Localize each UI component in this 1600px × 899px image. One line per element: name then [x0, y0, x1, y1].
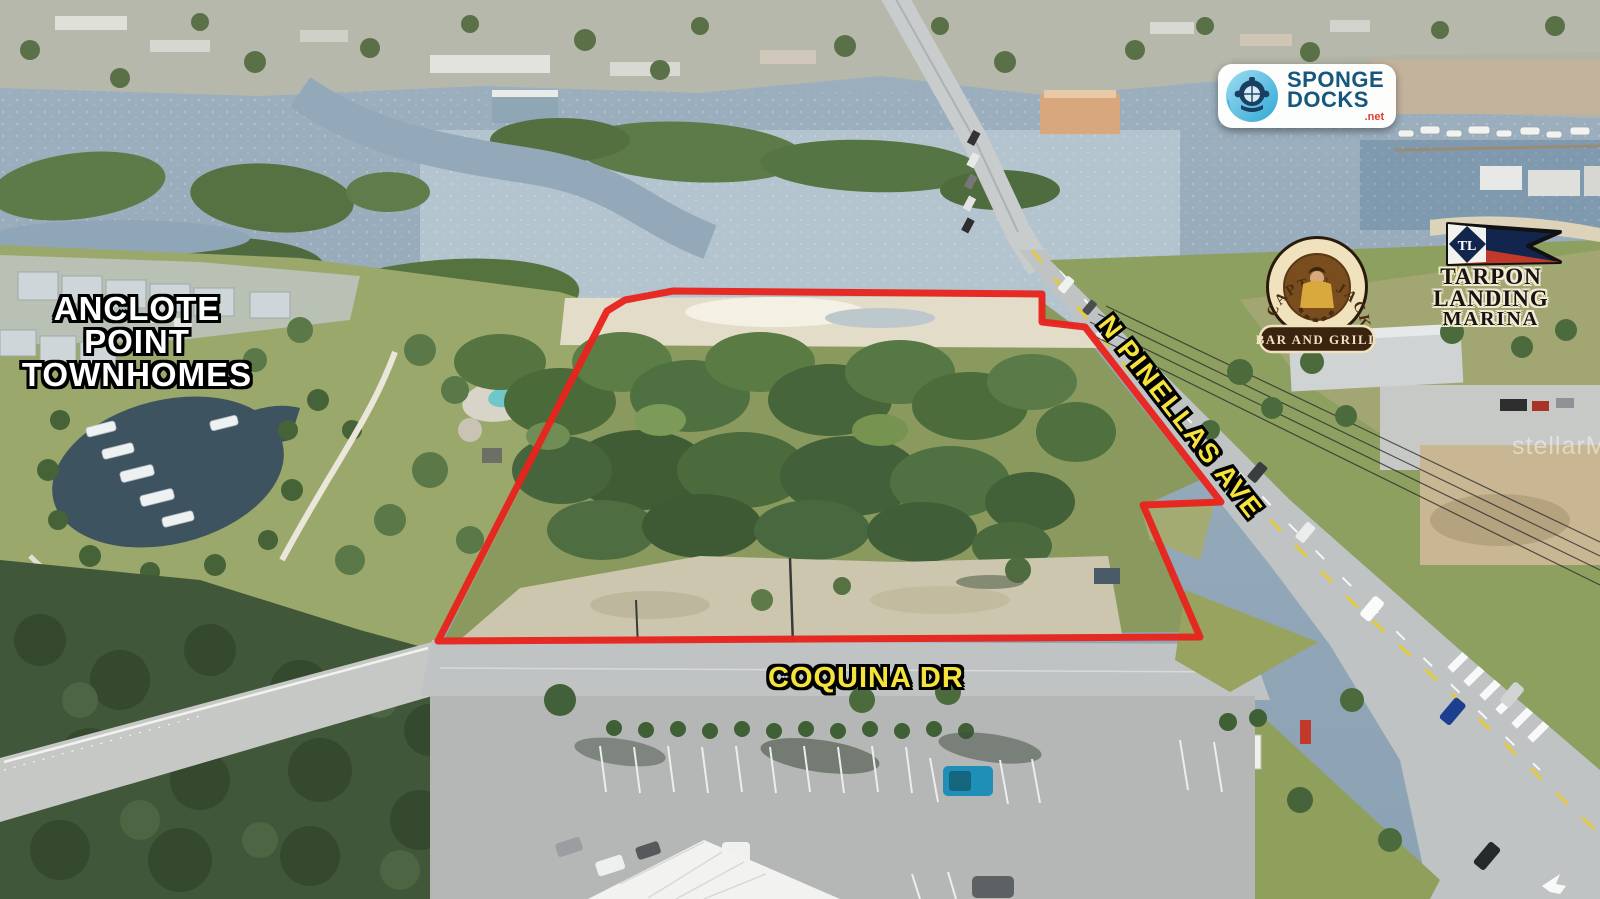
- sponge-docks-logo: SPONGE DOCKS .net: [1218, 64, 1396, 128]
- parking-lot: [430, 679, 1267, 899]
- tarpon-landing-line1: TARPON LANDING: [1382, 266, 1600, 310]
- aerial-listing-photo: ANCLOTE POINT TOWNHOMES N PINELLAS AVE C…: [0, 0, 1600, 899]
- tarpon-landing-logo: TL TARPON LANDING MARINA: [1382, 218, 1600, 318]
- tarpon-landing-line2: MARINA: [1382, 310, 1600, 329]
- stellar-mls-watermark: stellarMLS: [1512, 432, 1600, 461]
- road-label-coquina: COQUINA DR: [768, 662, 964, 695]
- sponge-docks-tld: .net: [1287, 112, 1384, 122]
- tarpon-flag-monogram: TL: [1458, 239, 1477, 254]
- diver-helmet-icon: [1225, 69, 1279, 123]
- captn-jacks-logo: CAPT'N JACK'S BAR AND GRILL: [1240, 234, 1394, 356]
- aerial-photo-scene: [0, 0, 1600, 899]
- sponge-docks-word2: DOCKS: [1287, 90, 1384, 110]
- captn-jacks-tagline: BAR AND GRILL: [1256, 332, 1379, 347]
- townhomes-label-line1: ANCLOTE POINT: [18, 292, 256, 358]
- townhomes-label-line2: TOWNHOMES: [18, 358, 256, 391]
- townhomes-label: ANCLOTE POINT TOWNHOMES: [18, 292, 256, 391]
